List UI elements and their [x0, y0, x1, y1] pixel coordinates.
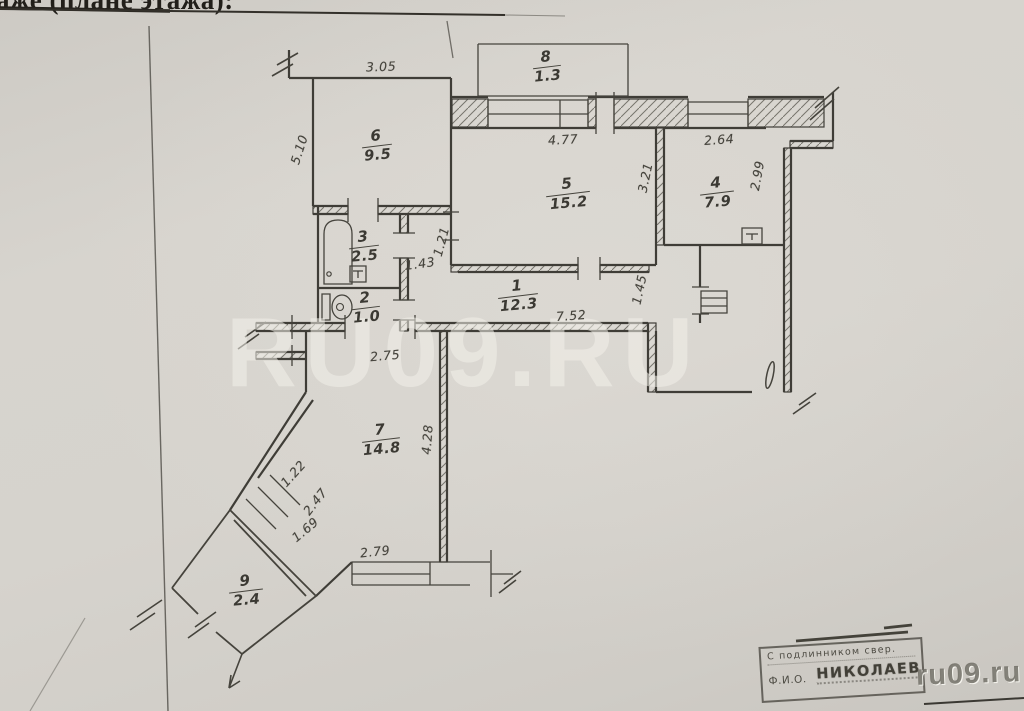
watermark-small: ru09.ru: [915, 656, 1021, 693]
dim-2-75: 2.75: [369, 347, 400, 365]
room-label-2: 2 1.0: [351, 289, 382, 326]
dim-3-05: 3.05: [366, 58, 397, 74]
bottom-right-rule: [924, 698, 1024, 704]
header-rule: [0, 8, 565, 16]
room-label-7: 7 14.8: [361, 421, 402, 459]
dim-4-28: 4.28: [419, 424, 436, 455]
main-walls: [230, 50, 833, 596]
dim-2-64: 2.64: [704, 131, 735, 148]
certification-stamp: С подлинником свер. Ф.И.О. НИКОЛАЕВ: [758, 637, 925, 703]
dim-2-79: 2.79: [359, 542, 391, 560]
room-label-3: 3 2.5: [348, 228, 381, 265]
room-label-8: 8 1.3: [532, 48, 563, 85]
dim-7-52: 7.52: [556, 307, 587, 324]
stamp-fio-label: Ф.И.О.: [768, 673, 807, 687]
stamp-name: НИКОЛАЕВ: [816, 660, 922, 684]
room-label-6: 6 9.5: [361, 127, 394, 164]
room-label-9: 9 2.4: [228, 572, 265, 610]
entry-door-leaf: [764, 361, 776, 389]
room-label-4: 4 7.9: [699, 174, 736, 212]
room-label-5: 5 15.2: [545, 175, 592, 214]
scanned-floor-plan-page: аже (плане этажа):: [0, 0, 1024, 711]
room-label-1: 1 12.3: [497, 277, 540, 315]
floor-plan-drawing: [0, 0, 1024, 711]
dim-4-77: 4.77: [548, 131, 579, 148]
